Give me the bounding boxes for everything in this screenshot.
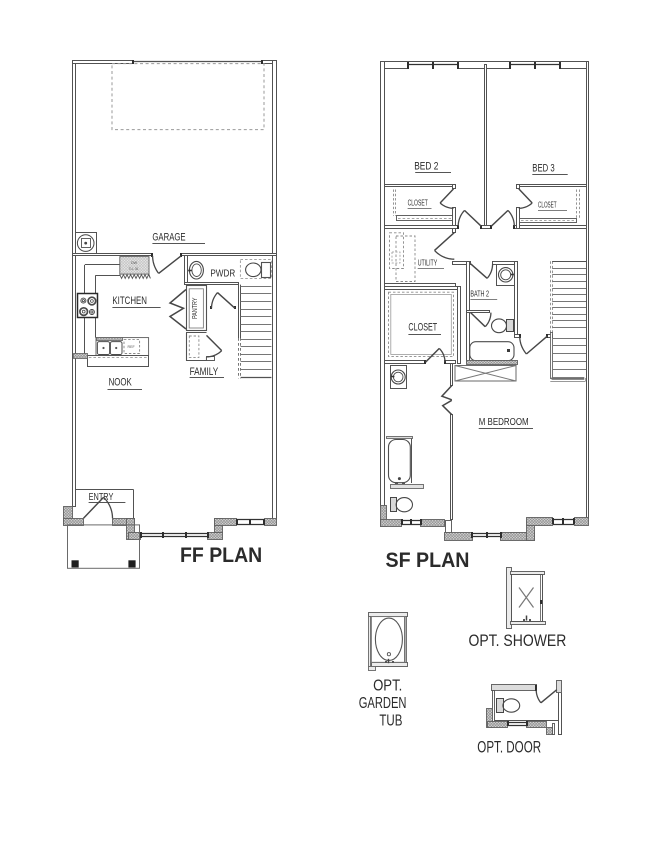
svg-text:FAMILY: FAMILY bbox=[190, 366, 219, 378]
svg-text:PANTRY: PANTRY bbox=[190, 298, 199, 320]
svg-text:TUB: TUB bbox=[379, 713, 402, 730]
svg-text:BED 2: BED 2 bbox=[414, 160, 438, 172]
svg-text:TLL 36: TLL 36 bbox=[129, 267, 139, 271]
svg-text:KITCHEN: KITCHEN bbox=[112, 295, 147, 307]
svg-text:GARDEN: GARDEN bbox=[359, 695, 407, 712]
svg-text:FF PLAN: FF PLAN bbox=[180, 544, 262, 567]
svg-text:UTILITY: UTILITY bbox=[418, 259, 438, 268]
svg-text:DW: DW bbox=[130, 261, 138, 265]
svg-text:NOOK: NOOK bbox=[109, 377, 132, 389]
svg-text:CLOSET: CLOSET bbox=[538, 201, 557, 210]
svg-text:GARAGE: GARAGE bbox=[152, 232, 185, 244]
svg-text:OPT. SHOWER: OPT. SHOWER bbox=[469, 632, 567, 650]
svg-text:REF: REF bbox=[128, 345, 136, 349]
svg-text:ENTRY: ENTRY bbox=[89, 492, 114, 503]
svg-text:CLOSET: CLOSET bbox=[408, 322, 437, 334]
svg-text:SF PLAN: SF PLAN bbox=[386, 549, 470, 572]
svg-text:BED 3: BED 3 bbox=[532, 162, 554, 174]
svg-text:OPT.: OPT. bbox=[373, 678, 402, 695]
svg-text:BATH 2: BATH 2 bbox=[470, 289, 489, 298]
svg-text:PWDR: PWDR bbox=[210, 268, 235, 279]
svg-text:OPT. DOOR: OPT. DOOR bbox=[477, 738, 541, 756]
svg-text:M BEDROOM: M BEDROOM bbox=[479, 417, 529, 428]
svg-text:CLOSET: CLOSET bbox=[408, 198, 428, 207]
